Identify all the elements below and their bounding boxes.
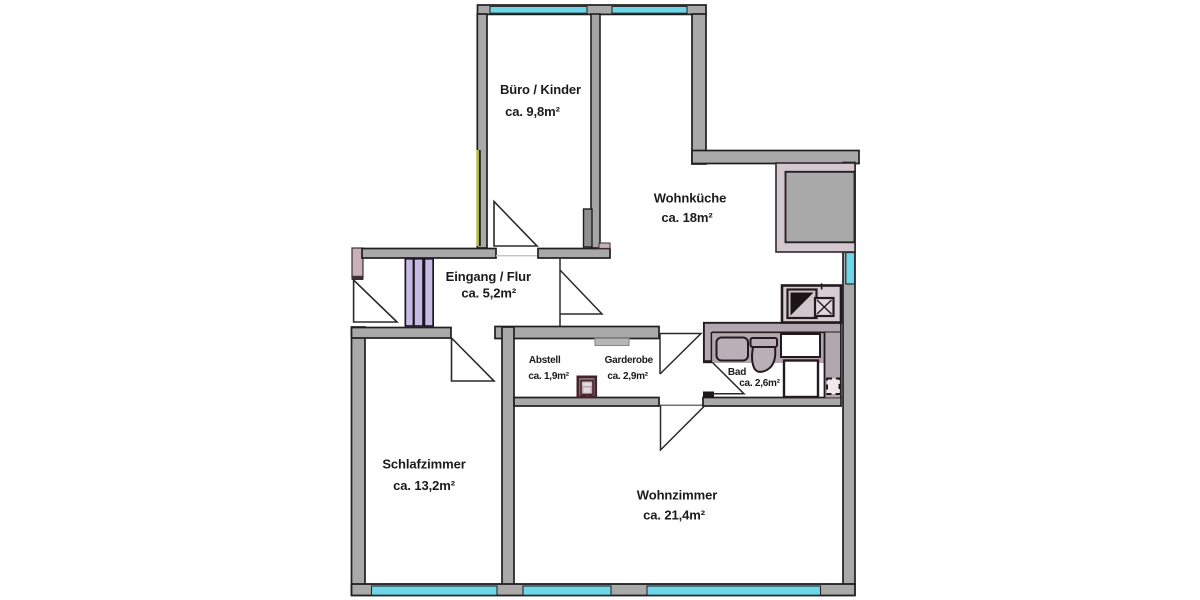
svg-text:Garderobe: Garderobe: [605, 355, 654, 366]
svg-text:ca. 2,6m²: ca. 2,6m²: [739, 378, 780, 389]
svg-text:ca. 1,9m²: ca. 1,9m²: [528, 371, 569, 382]
svg-text:ca. 21,4m²: ca. 21,4m²: [643, 508, 706, 523]
svg-text:ca. 13,2m²: ca. 13,2m²: [393, 478, 456, 493]
svg-text:Bad: Bad: [728, 367, 746, 378]
svg-text:Wohnküche: Wohnküche: [654, 190, 727, 205]
svg-text:Abstell: Abstell: [529, 355, 561, 366]
svg-text:Wohnzimmer: Wohnzimmer: [637, 487, 717, 502]
svg-text:Eingang / Flur: Eingang / Flur: [446, 269, 531, 284]
svg-text:Büro / Kinder: Büro / Kinder: [500, 82, 581, 97]
svg-text:Schlafzimmer: Schlafzimmer: [382, 457, 465, 472]
svg-text:ca. 9,8m²: ca. 9,8m²: [505, 104, 561, 119]
svg-text:ca. 5,2m²: ca. 5,2m²: [461, 286, 517, 301]
svg-text:ca. 18m²: ca. 18m²: [661, 210, 713, 225]
svg-text:ca. 2,9m²: ca. 2,9m²: [607, 371, 648, 382]
